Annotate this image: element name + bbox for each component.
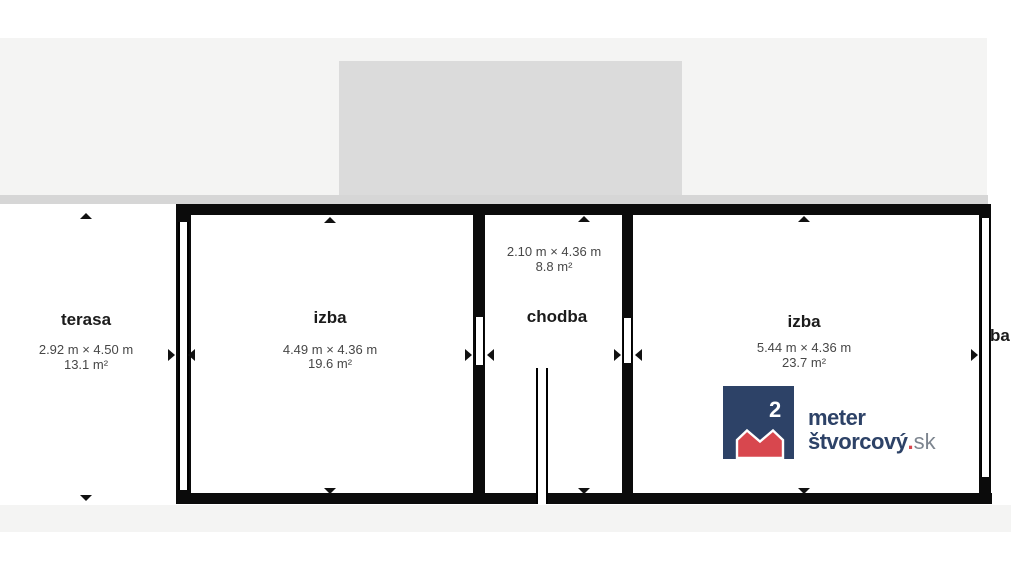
measure-arrow-down-icon bbox=[80, 495, 92, 501]
lower-edge-strip bbox=[0, 505, 1011, 532]
room-area-izba1: 19.6 m² bbox=[308, 356, 352, 371]
open-door-leaf-icon bbox=[536, 368, 548, 504]
measure-arrow-right-icon bbox=[614, 349, 621, 361]
room-area-terasa: 13.1 m² bbox=[64, 357, 108, 372]
measure-arrow-up-icon bbox=[324, 217, 336, 223]
logo-tld: sk bbox=[914, 429, 936, 454]
door-opening-izba1-chodba-icon bbox=[475, 317, 484, 365]
floorplan-canvas: terasa 2.92 m × 4.50 m 13.1 m² izba 4.49… bbox=[0, 0, 1011, 570]
measure-arrow-right-icon bbox=[465, 349, 472, 361]
wall-bottom bbox=[176, 493, 992, 504]
room-dimensions-izba1: 4.49 m × 4.36 m bbox=[283, 342, 377, 357]
measure-arrow-down-icon bbox=[798, 488, 810, 494]
room-label-clipped: ba bbox=[990, 326, 1010, 346]
measure-arrow-right-icon bbox=[168, 349, 175, 361]
room-label-izba2: izba bbox=[787, 312, 820, 332]
measure-arrow-left-icon bbox=[635, 349, 642, 361]
measure-arrow-left-icon bbox=[487, 349, 494, 361]
room-dimensions-terasa: 2.92 m × 4.50 m bbox=[39, 342, 133, 357]
measure-arrow-down-icon bbox=[578, 488, 590, 494]
measure-arrow-up-icon bbox=[798, 216, 810, 222]
room-dimensions-chodba: 2.10 m × 4.36 m bbox=[507, 244, 601, 259]
room-label-terasa: terasa bbox=[61, 310, 111, 330]
upper-floor-edge-strip bbox=[0, 195, 988, 204]
room-area-izba2: 23.7 m² bbox=[782, 355, 826, 370]
window-right-icon bbox=[981, 218, 990, 477]
logo-house-m-icon bbox=[735, 427, 785, 459]
room-area-chodba: 8.8 m² bbox=[536, 259, 573, 274]
measure-arrow-right-icon bbox=[971, 349, 978, 361]
upper-floor-block bbox=[339, 61, 682, 196]
logo-wordmark: meter štvorcový.sk bbox=[808, 407, 936, 455]
measure-arrow-left-icon bbox=[188, 349, 195, 361]
measure-arrow-down-icon bbox=[324, 488, 336, 494]
logo-word1: meter bbox=[808, 405, 865, 430]
measure-arrow-up-icon bbox=[578, 216, 590, 222]
wall-top bbox=[176, 204, 991, 215]
room-label-chodba: chodba bbox=[527, 307, 587, 327]
room-dimensions-izba2: 5.44 m × 4.36 m bbox=[757, 340, 851, 355]
door-opening-chodba-izba2-icon bbox=[623, 318, 632, 363]
logo-word2: štvorcový bbox=[808, 429, 907, 454]
measure-arrow-up-icon bbox=[80, 213, 92, 219]
logo-exponent: 2 bbox=[769, 399, 781, 421]
room-label-izba1: izba bbox=[313, 308, 346, 328]
meterstvorcovy-logo: 2 bbox=[723, 386, 794, 459]
